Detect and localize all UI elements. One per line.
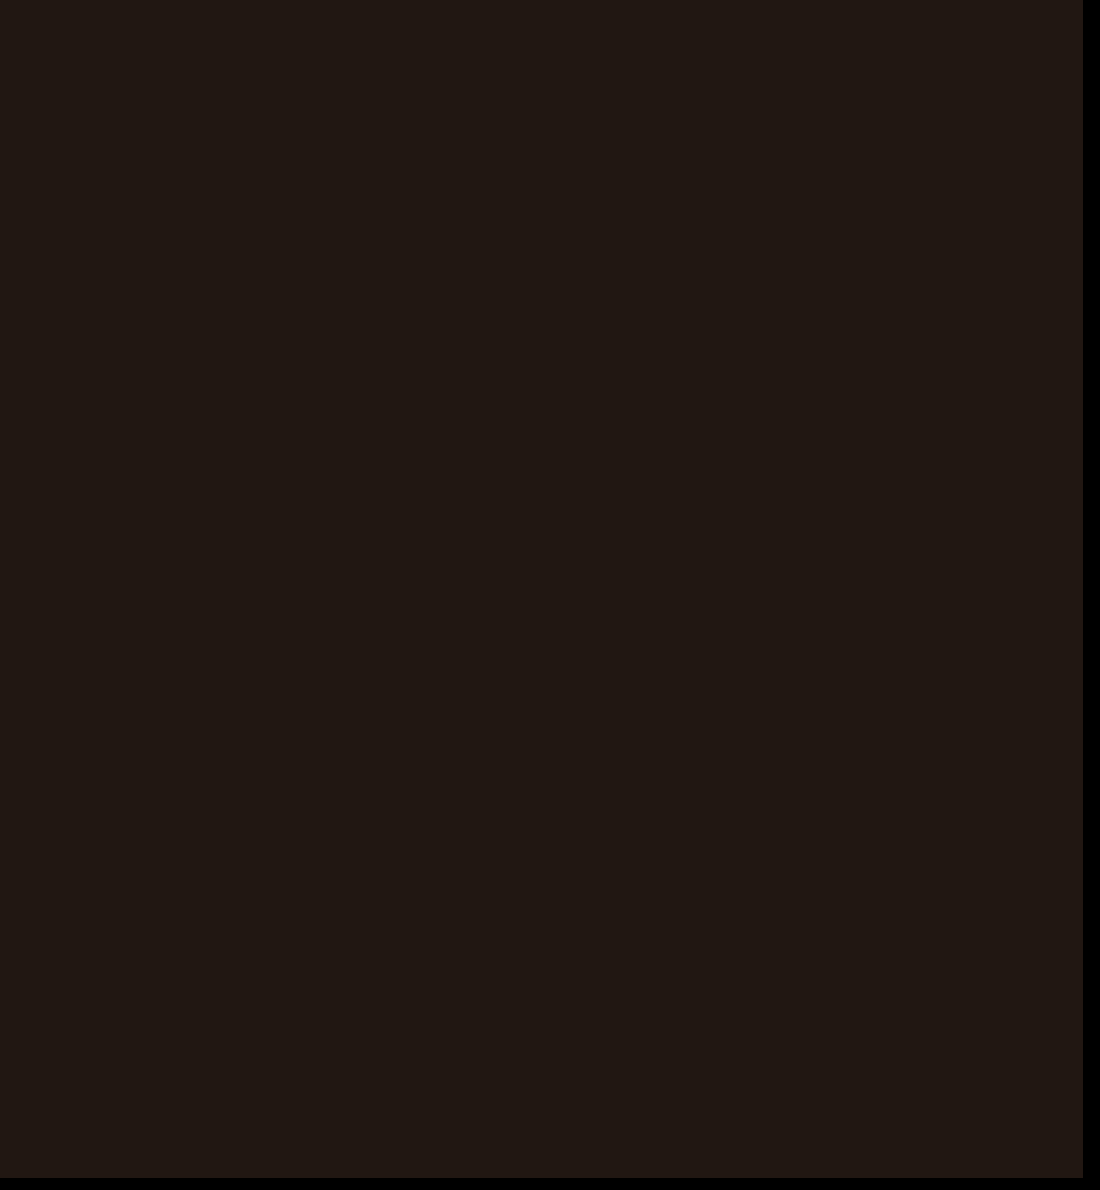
right-black-bar: [1083, 0, 1100, 1190]
bottom-black-bar: [0, 1178, 1100, 1190]
blank-screen: [0, 0, 1083, 1178]
